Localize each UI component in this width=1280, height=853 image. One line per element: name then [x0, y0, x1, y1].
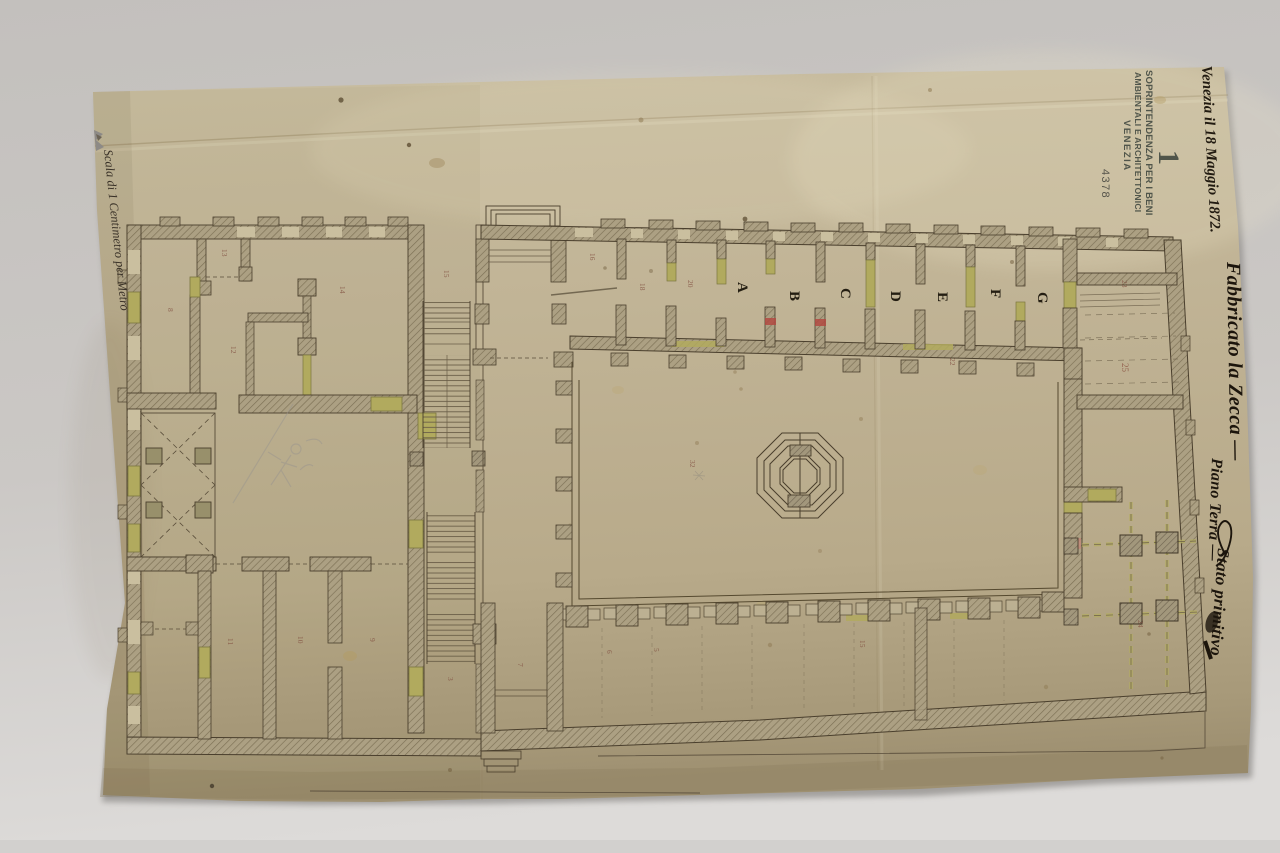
svg-text:14: 14 — [338, 286, 347, 294]
svg-text:D: D — [887, 291, 903, 302]
svg-text:1: 1 — [1152, 150, 1185, 165]
svg-text:11: 11 — [226, 638, 235, 645]
svg-text:25: 25 — [1120, 363, 1130, 373]
svg-text:18: 18 — [638, 283, 647, 291]
svg-text:5: 5 — [652, 648, 661, 652]
svg-text:8: 8 — [166, 308, 175, 312]
svg-text:F: F — [987, 289, 1003, 298]
svg-text:6: 6 — [605, 650, 614, 654]
svg-text:32: 32 — [688, 460, 697, 468]
svg-text:3: 3 — [446, 677, 455, 681]
svg-text:13: 13 — [220, 249, 229, 257]
svg-text:23: 23 — [1120, 280, 1129, 288]
svg-text:7: 7 — [516, 663, 525, 667]
svg-text:12: 12 — [229, 346, 238, 354]
svg-text:24: 24 — [1136, 620, 1145, 628]
svg-text:4378: 4378 — [1099, 169, 1111, 199]
svg-text:15: 15 — [442, 270, 451, 278]
svg-text:Fabbricato la Zecca —: Fabbricato la Zecca — — [1222, 261, 1247, 461]
svg-text:10: 10 — [296, 636, 305, 644]
svg-text:C: C — [837, 288, 853, 299]
svg-text:AMBIENTALI E ARCHITETTONICI: AMBIENTALI E ARCHITETTONICI — [1133, 72, 1143, 212]
svg-text:G: G — [1034, 292, 1050, 304]
svg-text:VENEZIA: VENEZIA — [1121, 120, 1132, 172]
svg-text:E: E — [934, 292, 950, 302]
svg-text:SOPRINTENDENZA PER I BENI: SOPRINTENDENZA PER I BENI — [1143, 70, 1154, 216]
svg-text:22: 22 — [948, 358, 957, 366]
svg-text:20: 20 — [686, 280, 695, 288]
svg-text:16: 16 — [588, 253, 597, 261]
svg-text:B: B — [786, 291, 802, 301]
svg-text:15: 15 — [858, 640, 867, 648]
svg-text:A: A — [734, 282, 750, 293]
svg-text:9: 9 — [368, 638, 377, 642]
